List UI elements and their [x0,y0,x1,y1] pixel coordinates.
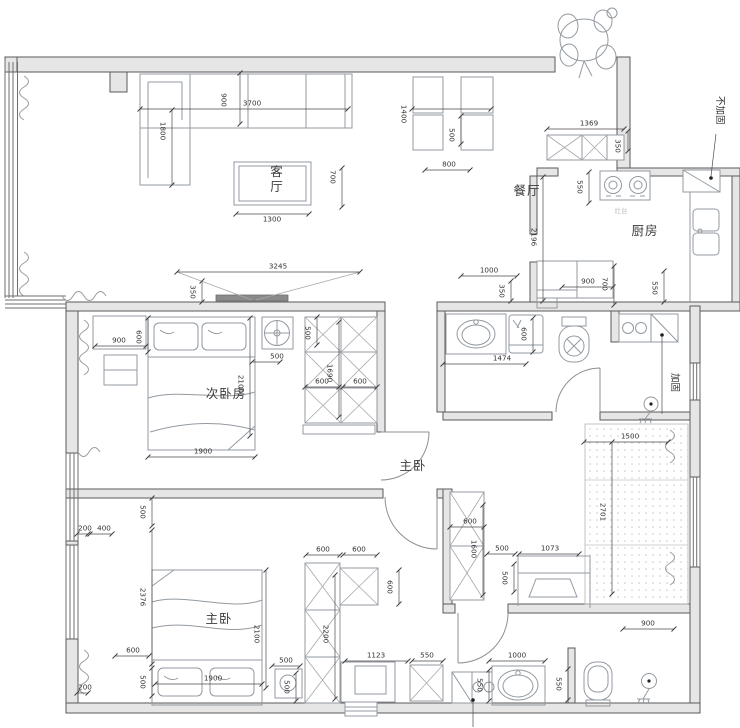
dimension-label: 1474 [493,354,512,363]
dimension-label: 500 [500,571,509,585]
dimension-label: 900 [581,277,595,286]
dimension-label: 1900 [194,447,213,456]
bathroom-corner-cabinet [651,314,678,342]
dimension-label: 3245 [269,262,287,271]
dimension-label: 1000 [508,651,527,660]
dimension-label: 200 [78,524,92,533]
dimension-label: 600 [134,330,143,344]
dimension-label: 550 [650,281,659,295]
dimension-label: 700 [328,170,337,184]
dimension-label: 1000 [480,266,499,275]
dimension-label: 600 [385,580,394,594]
dimension-label: 2100 [252,625,261,644]
bathroom-counter [619,314,651,342]
dimension-label: 1500 [621,432,640,441]
dimension-label: 900 [219,93,228,107]
dimension-label: 1073 [541,544,559,553]
dimension-label: 500 [303,326,312,340]
dimension-label: 900 [112,336,126,345]
dimension-label: 200 [78,683,92,692]
dimension-label: 1400 [399,105,408,124]
dimension-label: 700 [600,277,609,291]
dimension-label: 900 [641,619,655,628]
floor-plan-page: 9003700180014005008001369350550219655090… [0,0,740,728]
dimension-label: 1123 [367,651,385,660]
dimension-label: 1900 [204,674,223,683]
dimension-label: 400 [97,524,111,533]
dimension-label: 1600 [469,540,478,559]
dimension-label: 600 [519,327,528,341]
annotation-label: 不加固 [714,96,725,125]
ceiling-fan-unit [262,317,293,349]
dimension-label: 2701 [598,503,607,521]
wardrobe-master-small [410,665,443,701]
dimension-label: 500 [447,128,456,142]
dimension-label: 600 [352,545,366,554]
dimension-label: 550 [420,651,434,660]
annotation-label: 加固 [669,373,680,392]
dimension-label: 350 [613,139,622,153]
dimension-label: 550 [475,678,484,692]
stove [600,171,650,200]
dimension-label: 600 [353,377,367,386]
dimension-label: 600 [315,377,329,386]
dimension-label: 500 [282,680,291,694]
dimension-label: 800 [442,160,456,169]
room-label: 客厅 [270,164,284,194]
room-label: 主卧 [399,458,426,473]
dimension-label: 500 [495,544,509,553]
dimension-label: 600 [316,545,330,554]
dimension-label: 500 [279,656,293,665]
dimension-label: 2376 [138,588,147,607]
dimension-label: 1800 [158,122,167,141]
dimension-label: 500 [270,352,284,361]
dimension-label: 500 [138,675,147,689]
steps [345,702,377,716]
dimension-label: 350 [497,284,506,298]
kitchen-corner-cabinet [683,170,720,192]
dimension-label: 1369 [580,119,599,128]
annotation-label: 灶台 [615,206,628,215]
room-label: 主卧 [205,611,232,626]
dimension-label: 600 [463,517,477,526]
room-label: 餐厅 [513,183,540,198]
dimension-label: 350 [188,285,197,299]
room-label: 厨房 [631,223,658,238]
dimension-label: 550 [575,180,584,194]
floor-plan-canvas: 9003700180014005008001369350550219655090… [0,0,740,728]
dimension-label: 600 [126,646,140,655]
dimension-label: 2200 [321,625,330,644]
dimension-label: 3700 [243,99,262,108]
dimension-label: 1300 [263,215,282,224]
dimension-label: 500 [138,505,147,519]
dimension-label: 2196 [529,228,538,247]
room-label: 次卧房 [206,386,247,401]
dimension-label: 550 [554,677,563,691]
shoe-cabinet [547,135,624,160]
